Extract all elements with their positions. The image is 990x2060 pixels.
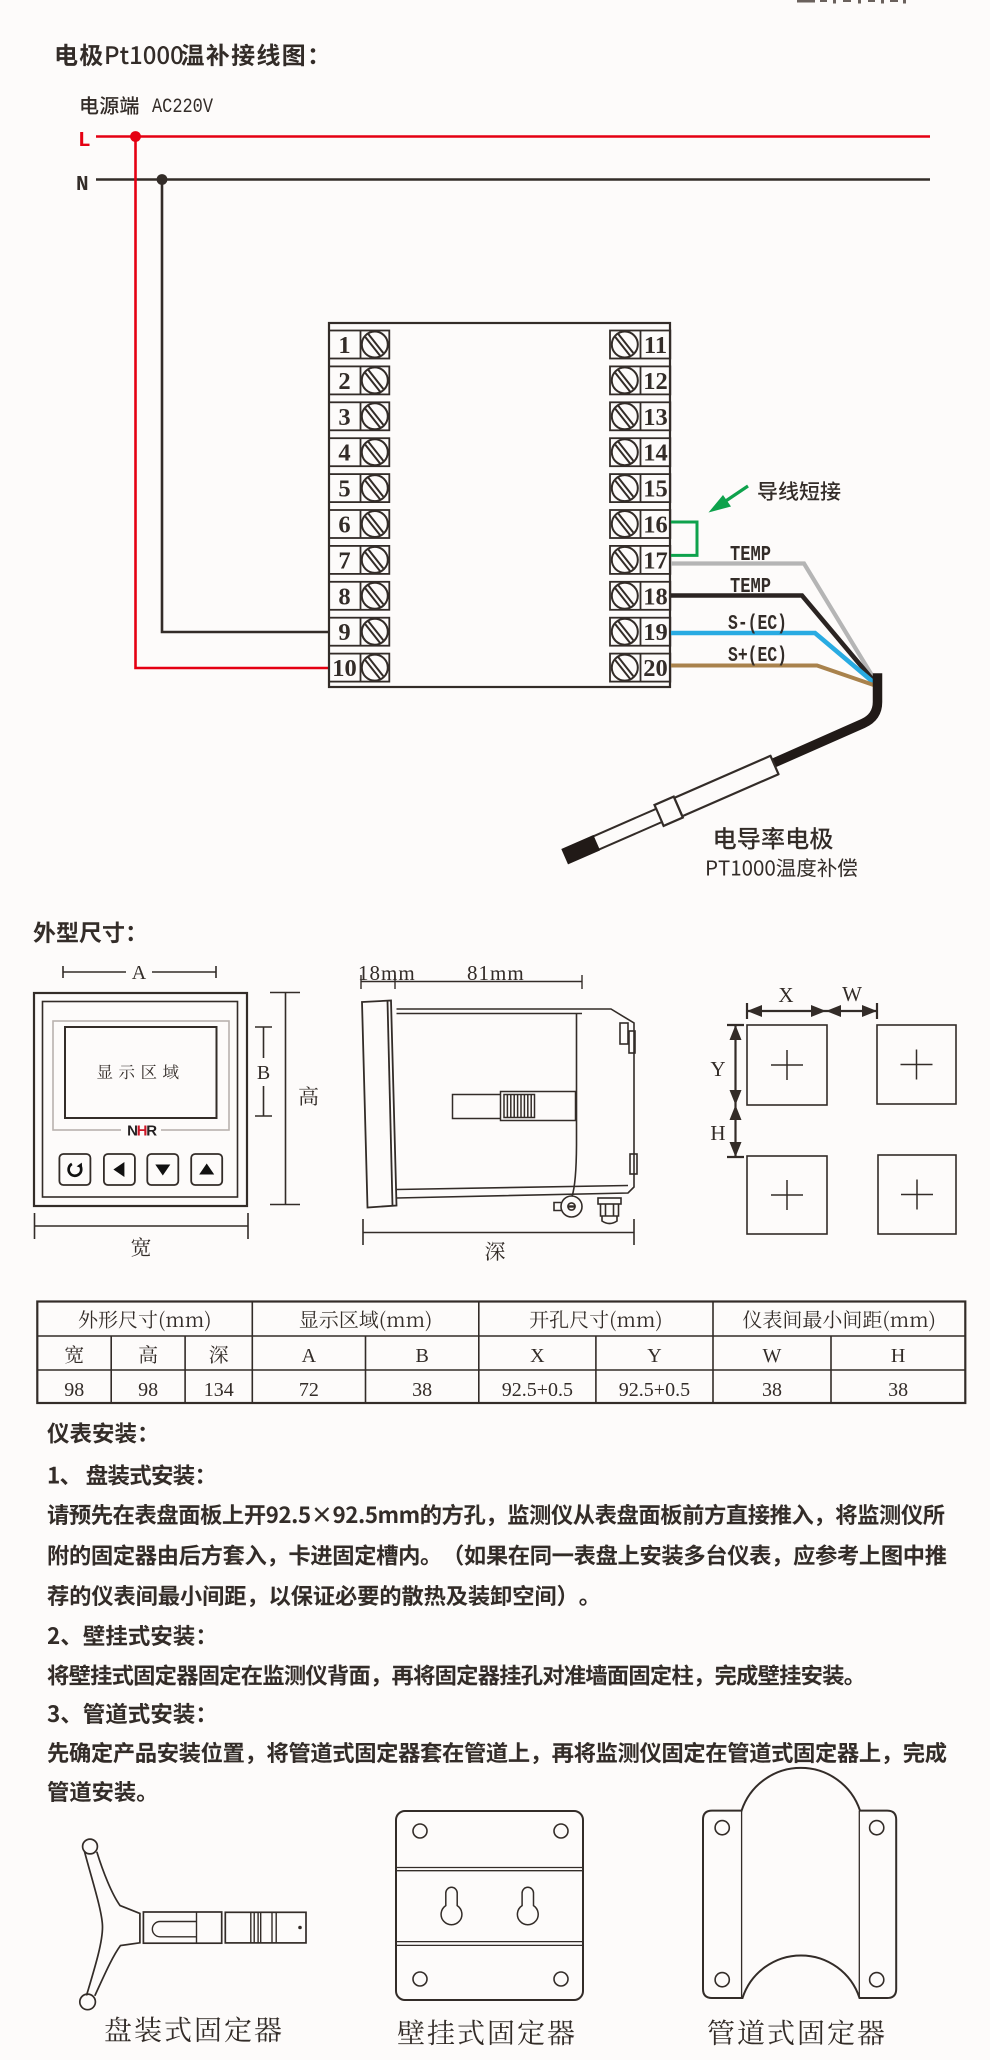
svg-text:134: 134 [204,1379,234,1401]
svg-text:TEMP: TEMP [730,544,771,567]
svg-text:N: N [76,174,89,197]
svg-text:14: 14 [643,440,668,467]
svg-text:S-(EC): S-(EC) [728,613,787,636]
svg-text:X: X [530,1345,545,1367]
svg-text:9: 9 [338,619,350,646]
svg-text:X: X [778,983,793,1007]
svg-text:S+(EC): S+(EC) [728,645,787,668]
svg-text:3: 3 [338,404,350,431]
svg-text:98: 98 [64,1379,84,1401]
svg-text:H: H [891,1345,905,1367]
svg-text:38: 38 [762,1379,782,1401]
svg-text:2: 2 [338,368,350,395]
svg-text:H: H [710,1121,725,1145]
svg-text:Y: Y [710,1057,725,1081]
svg-text:12: 12 [643,368,668,395]
svg-text:13: 13 [643,404,668,431]
svg-text:19: 19 [643,619,668,646]
svg-text:17: 17 [643,547,668,574]
svg-text:10: 10 [332,655,357,682]
svg-text:B: B [415,1345,428,1367]
svg-text:38: 38 [412,1379,432,1401]
svg-text:38: 38 [888,1379,908,1401]
svg-text:L: L [78,130,91,153]
svg-text:7: 7 [338,547,350,574]
svg-text:98: 98 [138,1379,158,1401]
svg-text:8: 8 [338,583,350,610]
svg-text:11: 11 [644,332,667,359]
svg-text:92.5+0.5: 92.5+0.5 [502,1379,573,1401]
svg-text:Y: Y [647,1345,661,1367]
svg-text:R: R [146,1123,157,1140]
svg-text:A: A [302,1345,317,1367]
svg-text:B: B [257,1062,270,1084]
svg-text:A: A [132,962,147,984]
svg-text:72: 72 [299,1379,319,1401]
svg-text:92.5+0.5: 92.5+0.5 [619,1379,690,1401]
svg-text:1: 1 [338,332,350,359]
svg-text:20: 20 [643,655,668,682]
svg-text:5: 5 [338,476,350,503]
svg-text:AC220V: AC220V [152,96,214,119]
svg-text:6: 6 [338,512,350,539]
svg-text:W: W [842,982,862,1006]
svg-text:4: 4 [338,440,350,467]
svg-text:16: 16 [643,512,668,539]
svg-text:18: 18 [643,583,668,610]
svg-text:15: 15 [643,476,668,503]
svg-text:W: W [763,1345,782,1367]
svg-text:TEMP: TEMP [730,576,771,599]
